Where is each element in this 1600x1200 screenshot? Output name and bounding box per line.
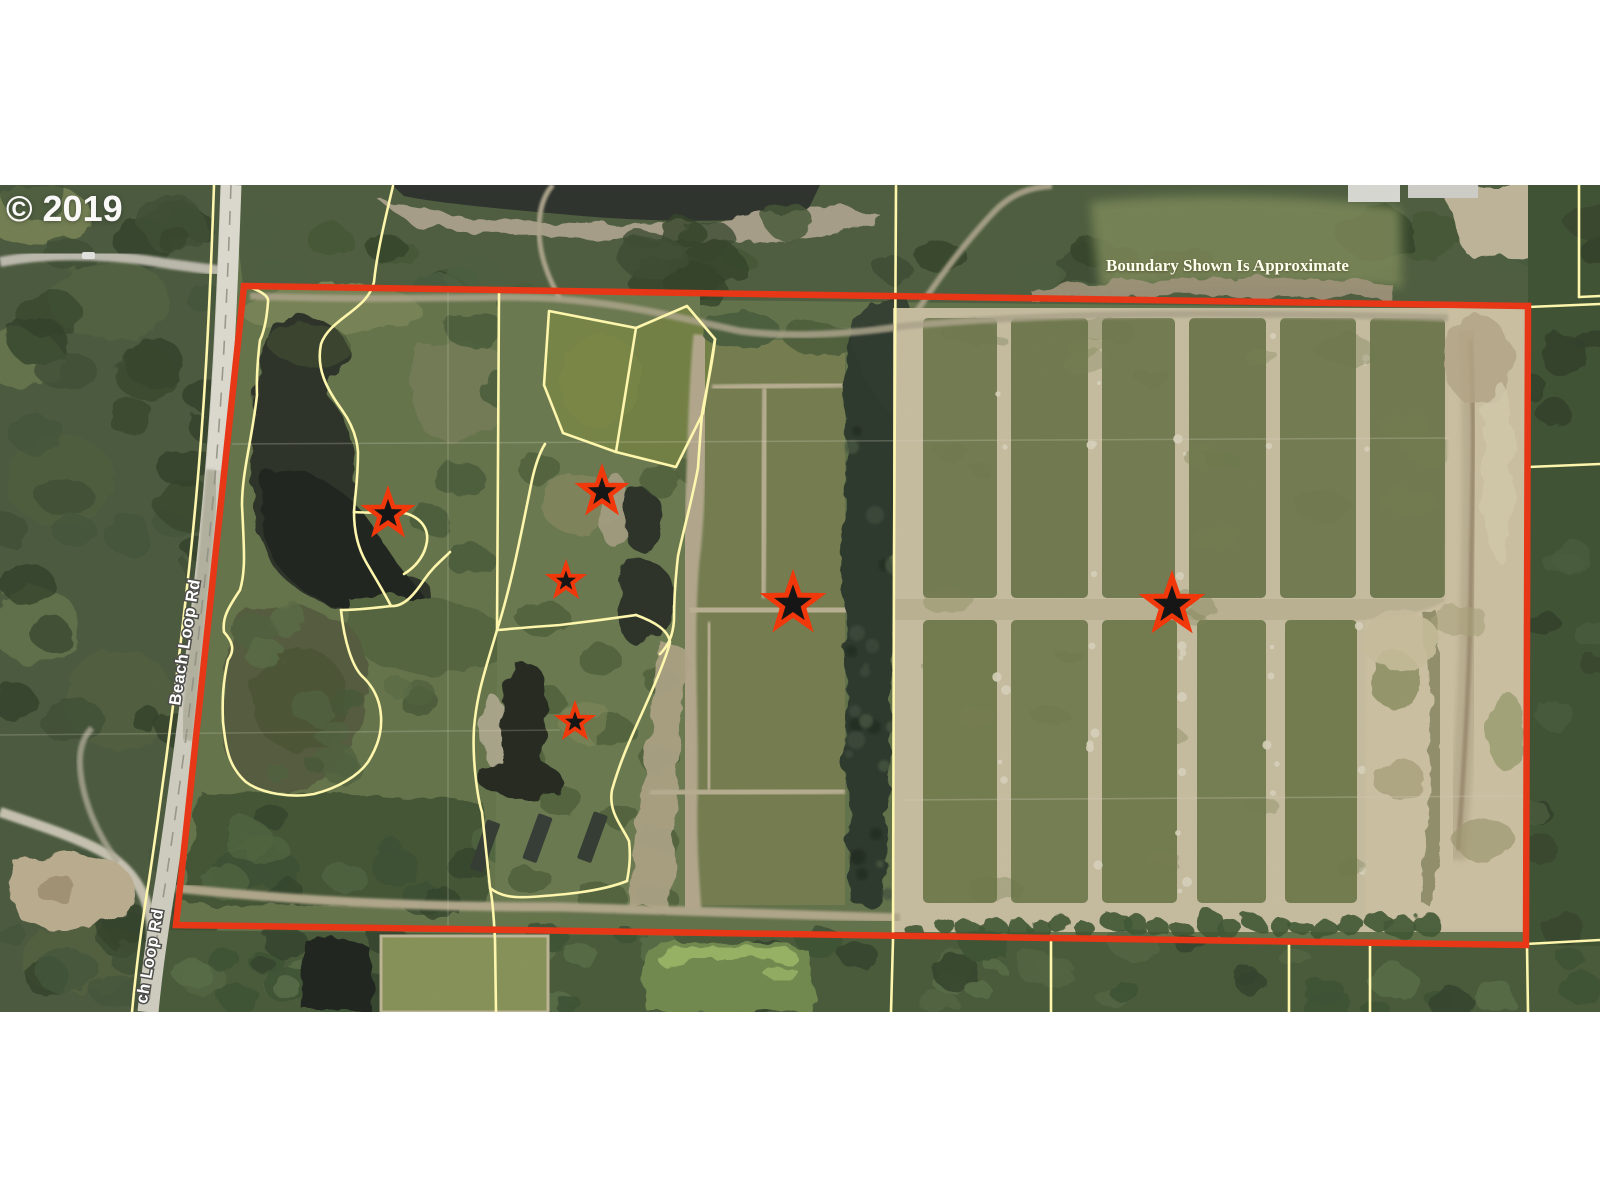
svg-text:© 2019: © 2019 <box>6 188 123 229</box>
svg-text:Boundary Shown Is Approximate: Boundary Shown Is Approximate <box>1106 256 1349 275</box>
